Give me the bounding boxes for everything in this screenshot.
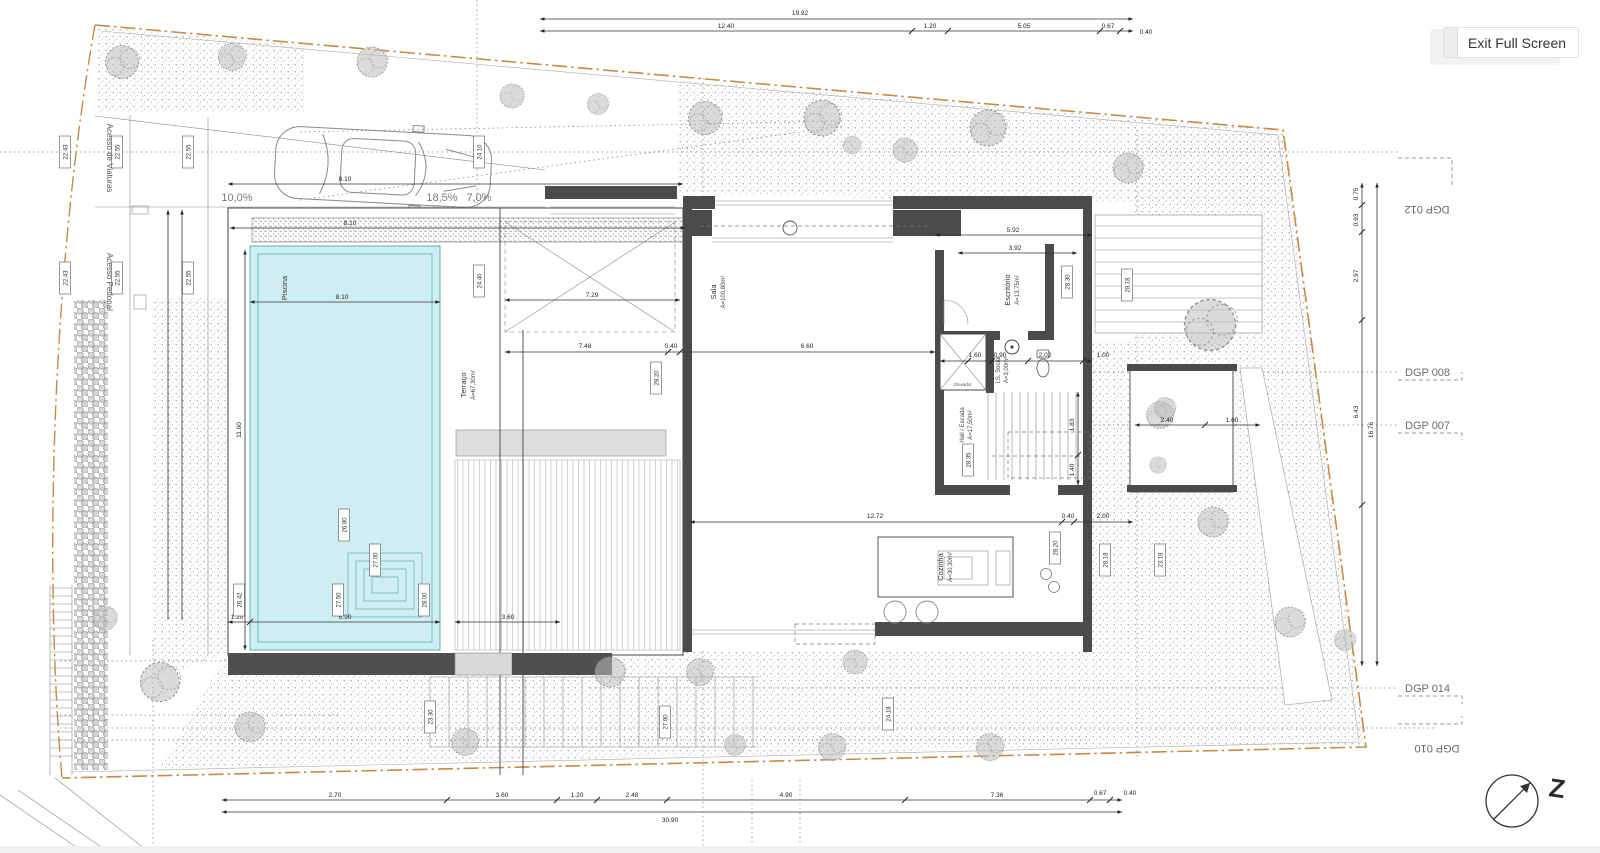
access-pedestrian-label: Acesso Pedonal	[105, 253, 114, 311]
svg-text:3.60: 3.60	[496, 792, 509, 799]
svg-text:11.60: 11.60	[236, 422, 243, 438]
svg-text:8.10: 8.10	[339, 176, 352, 183]
svg-text:0.40: 0.40	[1062, 513, 1075, 520]
svg-text:28.18: 28.18	[1104, 552, 1110, 568]
exit-fullscreen-label: Exit Full Screen	[1468, 35, 1566, 51]
svg-text:12.40: 12.40	[718, 23, 735, 30]
svg-text:1.20: 1.20	[571, 792, 584, 799]
hedge-row	[50, 300, 108, 775]
svg-text:0.67: 0.67	[1102, 23, 1115, 30]
svg-text:A=30,30m²: A=30,30m²	[948, 552, 954, 582]
svg-text:6.60: 6.60	[801, 343, 814, 350]
svg-text:0.40: 0.40	[1140, 29, 1153, 36]
pool-basin	[250, 246, 440, 650]
svg-text:7.36: 7.36	[991, 792, 1004, 799]
dgp-tags: DGP 012 DGP 008 DGP 007 DGP 014 DGP 010	[1398, 158, 1462, 754]
room-label-hall: Hall / Escada	[960, 407, 966, 443]
svg-text:4.90: 4.90	[780, 792, 793, 799]
svg-text:8.10: 8.10	[336, 294, 349, 301]
svg-text:1.60: 1.60	[969, 352, 982, 359]
svg-text:0.40: 0.40	[665, 343, 678, 350]
room-label-cozinha: Cozinha	[936, 552, 945, 580]
svg-text:23.18: 23.18	[1159, 552, 1165, 568]
svg-text:27.00: 27.00	[374, 552, 380, 568]
viewport-bottom-bar	[0, 846, 1600, 853]
svg-text:0.40: 0.40	[1124, 790, 1137, 797]
svg-text:28.00: 28.00	[423, 592, 429, 608]
room-label-piscina: Piscina	[280, 275, 289, 300]
svg-text:26.80: 26.80	[343, 517, 349, 533]
room-label-escritorio: Escritório	[1003, 274, 1012, 305]
svg-text:22.55: 22.55	[116, 144, 122, 160]
dgp-tag: DGP 007	[1405, 420, 1450, 432]
svg-text:A=100,80m²: A=100,80m²	[721, 276, 727, 309]
svg-text:1.00: 1.00	[1097, 352, 1110, 359]
dim-bottom: 2.70 3.60 1.20 2.48 4.90 7.36 0.67 0.40 …	[222, 790, 1137, 824]
access-vehicles-label: Acesso de Viaturas	[105, 124, 114, 193]
svg-text:28.30: 28.30	[1066, 274, 1072, 290]
svg-text:12.72: 12.72	[867, 513, 884, 520]
fullscreen-grip-icon	[1444, 28, 1458, 57]
svg-text:0.67: 0.67	[1094, 790, 1107, 797]
svg-text:30.90: 30.90	[662, 817, 679, 824]
svg-text:2.70: 2.70	[329, 792, 342, 799]
svg-text:24.40: 24.40	[478, 273, 484, 289]
elevator-shaft: Elevador	[940, 334, 986, 390]
svg-text:22.55: 22.55	[187, 270, 193, 286]
floorplan-viewer: Elevador	[0, 0, 1600, 853]
svg-text:28.35: 28.35	[967, 452, 973, 468]
svg-text:2.48: 2.48	[626, 792, 639, 799]
svg-text:3.60: 3.60	[502, 614, 515, 621]
car-top-view	[273, 118, 493, 215]
svg-text:24.10: 24.10	[478, 144, 484, 160]
north-label: Z	[1547, 772, 1567, 804]
svg-text:2.97: 2.97	[1353, 269, 1360, 282]
svg-text:22.55: 22.55	[187, 144, 193, 160]
terrace-planter	[456, 430, 666, 456]
svg-text:2.40: 2.40	[1161, 417, 1174, 424]
svg-text:28.20: 28.20	[655, 370, 661, 386]
dgp-tag: DGP 014	[1405, 683, 1450, 695]
louver-court	[1095, 215, 1262, 333]
dim-top: 19.92 12.40 1.20 5.05 0.67 0.40	[540, 10, 1153, 36]
room-label-sala: Sala	[709, 284, 718, 300]
ramp-slope-label: 18,5%	[426, 192, 457, 204]
svg-text:0.75: 0.75	[1353, 187, 1360, 200]
svg-text:7.48: 7.48	[579, 343, 592, 350]
annex	[1127, 364, 1237, 492]
elevator-label: Elevador	[954, 382, 972, 387]
svg-text:6.43: 6.43	[1353, 405, 1360, 418]
dgp-tag: DGP 008	[1405, 367, 1450, 379]
ramp-slope-label: 10,0%	[221, 192, 252, 204]
terrace-decking	[455, 460, 680, 650]
svg-text:3.92: 3.92	[1009, 245, 1022, 252]
svg-text:8.10: 8.10	[344, 220, 357, 227]
svg-text:A=13,75m²: A=13,75m²	[1015, 275, 1021, 305]
svg-text:2.02: 2.02	[1039, 352, 1052, 359]
svg-text:0.93: 0.93	[1353, 213, 1360, 226]
svg-text:1.60: 1.60	[1226, 417, 1239, 424]
svg-text:A=67,30m²: A=67,30m²	[471, 370, 477, 400]
svg-text:22.43: 22.43	[64, 144, 70, 160]
dim-right: 0.75 0.93 2.97 6.43 16.76	[1353, 183, 1377, 666]
dgp-tag: DGP 010	[1414, 742, 1459, 754]
svg-text:26.42: 26.42	[238, 592, 244, 608]
north-arrow: Z	[1486, 772, 1567, 827]
svg-text:28.20: 28.20	[1054, 540, 1060, 556]
svg-text:5.05: 5.05	[1018, 23, 1031, 30]
svg-text:27.50: 27.50	[337, 592, 343, 608]
svg-text:23.30: 23.30	[429, 709, 435, 725]
svg-text:22.43: 22.43	[64, 270, 70, 286]
svg-text:27.80: 27.80	[664, 714, 670, 730]
ramp-slope-label: 7,0%	[466, 192, 491, 204]
svg-text:16.76: 16.76	[1368, 421, 1375, 438]
dgp-tag: DGP 012	[1404, 203, 1449, 215]
svg-text:7.29: 7.29	[586, 292, 599, 299]
svg-text:28.18: 28.18	[1126, 277, 1132, 293]
svg-text:24.18: 24.18	[887, 706, 893, 722]
svg-text:A=3,00m²: A=3,00m²	[1004, 357, 1010, 383]
svg-text:1.20: 1.20	[924, 23, 937, 30]
svg-text:19.92: 19.92	[792, 10, 809, 17]
room-label-is-social: I.S. Social	[996, 356, 1002, 383]
svg-text:2.00: 2.00	[1097, 513, 1110, 520]
site-plan-drawing: Elevador	[0, 0, 1600, 853]
room-label-terraco: Terraço	[459, 372, 468, 397]
svg-text:1.40: 1.40	[1069, 463, 1076, 476]
svg-text:A=17,50m²: A=17,50m²	[968, 410, 974, 440]
svg-text:22.55: 22.55	[116, 270, 122, 286]
exit-fullscreen-button[interactable]: Exit Full Screen	[1443, 27, 1579, 58]
svg-text:1.83: 1.83	[1069, 418, 1076, 431]
svg-text:5.92: 5.92	[1007, 227, 1020, 234]
